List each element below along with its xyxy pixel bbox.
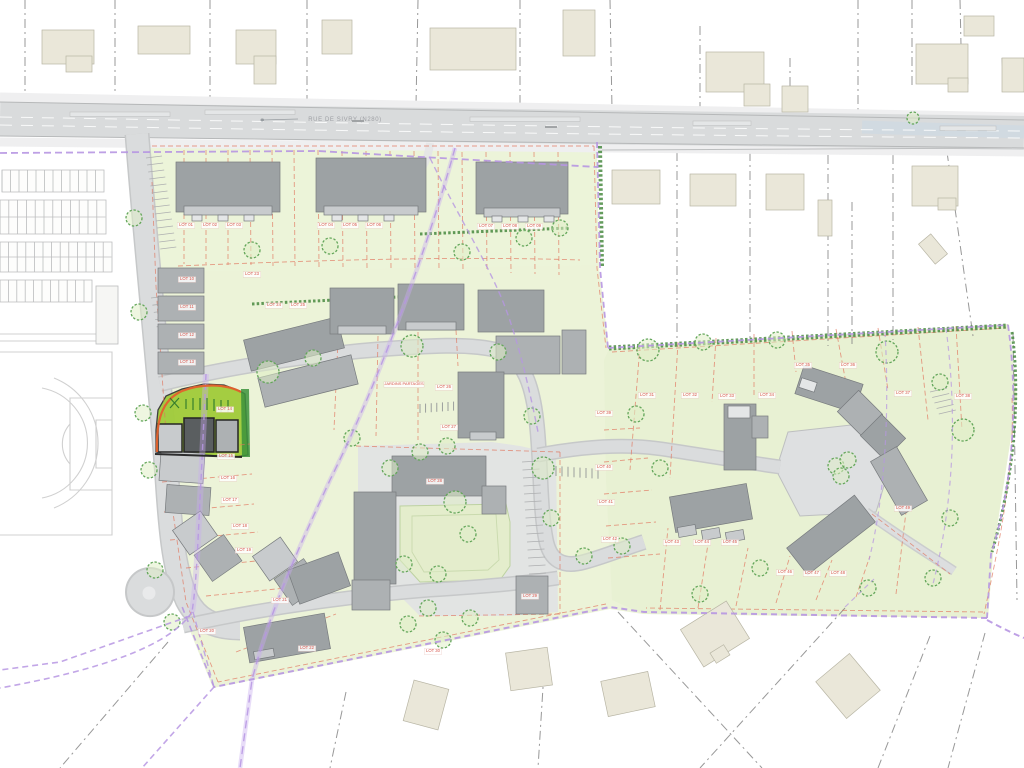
- tree-icon: [925, 570, 941, 586]
- lot-label: LOT 27: [442, 424, 457, 429]
- lot-label: LOT 14: [218, 406, 233, 411]
- existing-house: [563, 10, 595, 56]
- porch: [332, 215, 342, 221]
- courtyard-north-wing: [392, 456, 486, 496]
- house-block: [478, 290, 544, 332]
- apartment-wing: [752, 416, 768, 438]
- porch: [518, 216, 528, 222]
- lot-label: LOT 15: [219, 453, 234, 458]
- existing-house: [766, 174, 804, 210]
- tree-icon: [860, 580, 876, 596]
- lot-label: LOT 25: [291, 302, 306, 307]
- tree-icon: [833, 468, 849, 484]
- house-block: [165, 484, 211, 515]
- porch: [218, 215, 228, 221]
- lot-label: LOT 43: [665, 539, 680, 544]
- apartment-front: [470, 432, 496, 440]
- tree-icon: [652, 460, 668, 476]
- lot-label: LOT 22: [300, 645, 315, 650]
- tree-icon: [532, 457, 554, 479]
- tree-icon: [131, 304, 147, 320]
- tree-icon: [524, 408, 540, 424]
- traffic-island: [205, 110, 295, 115]
- lot-label: LOT 45: [723, 539, 738, 544]
- roof-accent: [728, 406, 750, 418]
- lot-label: LOT 37: [896, 390, 911, 395]
- house-front: [338, 326, 386, 334]
- lot-label: LOT 08: [503, 223, 518, 228]
- existing-house: [254, 56, 276, 84]
- lot-label: LOT 46: [778, 569, 793, 574]
- lot-label: LOT 18: [233, 523, 248, 528]
- lot-label: LOT 23: [245, 271, 260, 276]
- lot-label: LOT 44: [695, 539, 710, 544]
- tree-icon: [141, 462, 157, 478]
- tree-icon: [147, 562, 163, 578]
- lot-label: LOT 34: [760, 392, 775, 397]
- lot-label: JARDINS PARTAGES: [384, 381, 424, 386]
- porch: [384, 215, 394, 221]
- existing-house: [938, 198, 956, 210]
- existing-house: [782, 86, 808, 112]
- road-name-label: RUE DE SIVRY (N280): [308, 117, 382, 123]
- lot-label: LOT 38: [956, 393, 971, 398]
- existing-building: [96, 286, 118, 344]
- highlight-building: [158, 424, 182, 452]
- tree-icon: [126, 210, 142, 226]
- tree-icon: [412, 444, 428, 460]
- lot-label: LOT 35: [796, 362, 811, 367]
- lot-label: LOT 24: [267, 302, 282, 307]
- highlight-building: [184, 418, 214, 452]
- terrace-block: [316, 158, 426, 212]
- lot-label: LOT 16: [221, 475, 236, 480]
- existing-house: [818, 200, 832, 236]
- lot-label: LOT 05: [343, 222, 358, 227]
- lot-label: LOT 26: [437, 384, 452, 389]
- tree-icon: [454, 244, 470, 260]
- lot-label: LOT 21: [273, 597, 288, 602]
- tree-icon: [462, 610, 478, 626]
- tree-icon: [769, 332, 785, 348]
- traffic-island: [470, 117, 580, 122]
- porch: [244, 215, 254, 221]
- tree-icon: [628, 406, 644, 422]
- lot-label: LOT 42: [603, 536, 618, 541]
- porch: [358, 215, 368, 221]
- lot-label: LOT 28: [428, 478, 443, 483]
- traffic-island: [70, 112, 170, 117]
- tree-icon: [876, 341, 898, 363]
- terrace-front: [484, 208, 560, 217]
- lot-label: LOT 32: [683, 392, 698, 397]
- lot-label: LOT 41: [599, 499, 614, 504]
- parcel-line: [416, 0, 418, 105]
- parking-bank: [0, 280, 92, 302]
- site-plan-canvas: LOT 01LOT 02LOT 03LOT 04LOT 05LOT 06LOT …: [0, 0, 1024, 768]
- existing-house: [612, 170, 660, 204]
- existing-house: [506, 647, 553, 690]
- sports-pitch-line: [62, 424, 70, 464]
- tree-icon: [257, 361, 279, 383]
- utility-line: [0, 612, 192, 688]
- house-front: [406, 322, 456, 330]
- courtyard-annex: [352, 580, 390, 610]
- tree-icon: [552, 220, 568, 236]
- lot-label: LOT 11: [180, 304, 194, 309]
- lot-label: LOT 09: [527, 223, 542, 228]
- house-block: [496, 336, 560, 374]
- tree-icon: [439, 438, 455, 454]
- terrace-front: [184, 206, 272, 215]
- existing-house: [138, 26, 190, 54]
- existing-house: [1002, 58, 1024, 92]
- lot-label: LOT 02: [203, 222, 218, 227]
- hedge-line: [600, 146, 602, 266]
- tree-icon: [932, 374, 948, 390]
- utility-line: [0, 616, 190, 670]
- lot-label: LOT 33: [720, 393, 735, 398]
- lot-label: LOT 40: [597, 464, 612, 469]
- porch: [192, 215, 202, 221]
- existing-house: [964, 16, 994, 36]
- tree-icon: [460, 526, 476, 542]
- tree-icon: [752, 560, 768, 576]
- lot-label: LOT 01: [179, 222, 194, 227]
- courtyard-east-wing: [482, 486, 506, 514]
- lot-label: LOT 48: [831, 570, 846, 575]
- tree-icon: [244, 242, 260, 258]
- existing-house: [430, 28, 516, 70]
- tree-icon: [907, 112, 919, 124]
- existing-house: [690, 174, 736, 206]
- tree-icon: [490, 344, 506, 360]
- tree-icon: [543, 510, 559, 526]
- tree-icon: [444, 491, 466, 513]
- existing-house: [919, 234, 948, 264]
- lot-label: LOT 47: [805, 570, 820, 575]
- tree-icon: [942, 510, 958, 526]
- lot-label: LOT 30: [426, 648, 441, 653]
- existing-house: [403, 680, 449, 730]
- lot-label: LOT 31: [640, 392, 655, 397]
- courtyard-west-wing: [354, 492, 396, 584]
- existing-house: [816, 653, 881, 718]
- parcel-line: [948, 633, 985, 768]
- tree-icon: [637, 339, 659, 361]
- traffic-island: [940, 126, 996, 131]
- lot-label: LOT 13: [180, 359, 195, 364]
- tree-icon: [401, 335, 423, 357]
- tree-icon: [430, 566, 446, 582]
- parcel-line: [330, 692, 346, 768]
- parcel-line: [1013, 332, 1017, 600]
- tree-icon: [516, 230, 532, 246]
- tree-icon: [135, 405, 151, 421]
- lot-label: LOT 29: [523, 593, 538, 598]
- lot-label: LOT 36: [841, 362, 856, 367]
- highlight-hedge: [241, 389, 250, 457]
- tree-icon: [692, 586, 708, 602]
- parcel-line: [878, 636, 930, 768]
- lot-label: LOT 17: [223, 497, 238, 502]
- tree-icon: [396, 556, 412, 572]
- lot-label: LOT 04: [319, 222, 334, 227]
- terrace-block: [476, 162, 568, 214]
- lot-label: LOT 20: [200, 628, 215, 633]
- traffic-island: [693, 121, 751, 126]
- terrace-front: [324, 206, 418, 215]
- porch: [492, 216, 502, 222]
- apartment-block: [458, 372, 504, 438]
- sports-pitch-line: [42, 388, 87, 498]
- tree-icon: [382, 460, 398, 476]
- tree-icon: [305, 350, 321, 366]
- utility-line: [987, 620, 1024, 638]
- lot-label: LOT 12: [180, 332, 195, 337]
- lot-label: LOT 19: [237, 547, 252, 552]
- lot-label: LOT 49: [896, 505, 911, 510]
- tree-icon: [420, 600, 436, 616]
- lot-label: LOT 06: [367, 222, 382, 227]
- tree-icon: [576, 548, 592, 564]
- existing-house: [948, 78, 968, 92]
- house-block: [562, 330, 586, 374]
- porch: [544, 216, 554, 222]
- tree-icon: [840, 452, 856, 468]
- existing-house: [322, 20, 352, 54]
- existing-house: [601, 671, 655, 716]
- lot-label: LOT 07: [479, 223, 494, 228]
- lot-label: LOT 03: [227, 222, 242, 227]
- tree-icon: [952, 419, 974, 441]
- lot-label: LOT 39: [597, 410, 612, 415]
- tree-icon: [400, 616, 416, 632]
- highlight-building: [216, 420, 238, 452]
- lot-label: LOT 10: [180, 276, 195, 281]
- utility-line: [142, 687, 214, 768]
- existing-house: [744, 84, 770, 106]
- tree-icon: [322, 238, 338, 254]
- site-plan-map: LOT 01LOT 02LOT 03LOT 04LOT 05LOT 06LOT …: [0, 0, 1024, 768]
- terrace-block: [176, 162, 280, 212]
- existing-house: [66, 56, 92, 72]
- parcel-line: [610, 0, 612, 109]
